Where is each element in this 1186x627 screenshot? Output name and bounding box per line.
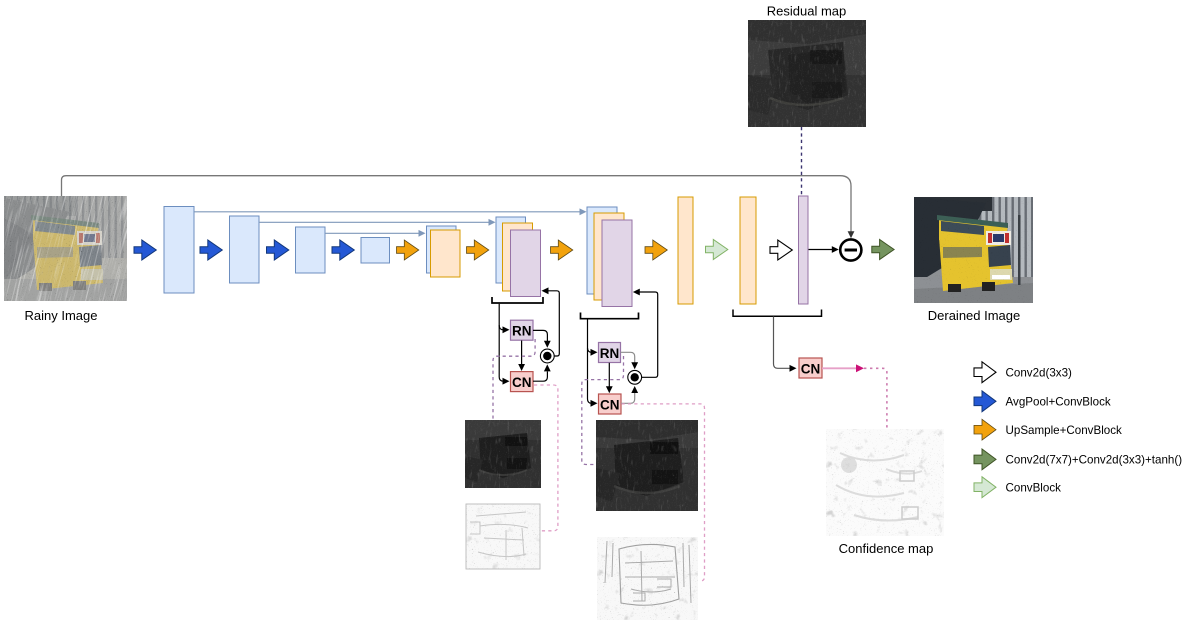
svg-text:AvgPool+ConvBlock: AvgPool+ConvBlock xyxy=(1006,396,1111,409)
svg-text:ConvBlock: ConvBlock xyxy=(1006,482,1062,495)
svg-text:RN: RN xyxy=(600,346,620,361)
svg-text:UpSample+ConvBlock: UpSample+ConvBlock xyxy=(1006,424,1123,437)
svg-text:Residual map: Residual map xyxy=(767,4,847,19)
svg-text:Confidence map: Confidence map xyxy=(839,541,934,556)
svg-text:CN: CN xyxy=(801,361,821,376)
svg-text:Conv2d(3x3): Conv2d(3x3) xyxy=(1006,367,1073,380)
svg-text:CN: CN xyxy=(600,397,620,412)
svg-text:Conv2d(7x7)+Conv2d(3x3)+tanh(): Conv2d(7x7)+Conv2d(3x3)+tanh() xyxy=(1006,454,1183,467)
svg-text:Rainy Image: Rainy Image xyxy=(25,308,98,323)
svg-text:RN: RN xyxy=(512,324,532,339)
svg-text:CN: CN xyxy=(512,375,532,390)
svg-text:Derained Image: Derained Image xyxy=(928,308,1021,323)
